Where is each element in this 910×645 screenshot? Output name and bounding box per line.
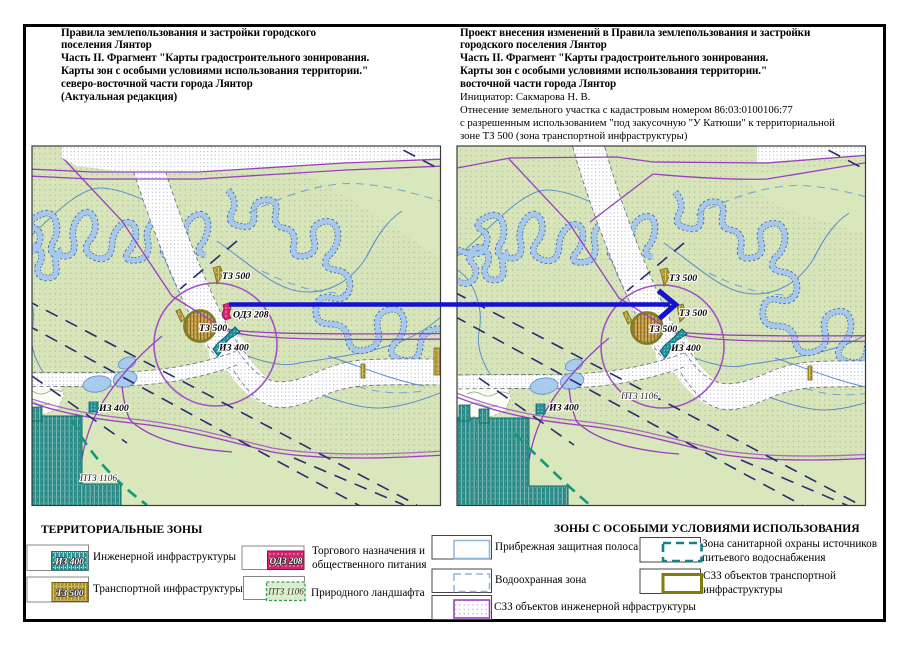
svg-text:ИЗ 400: ИЗ 400 <box>54 558 84 568</box>
svg-text:ОДЗ 208: ОДЗ 208 <box>233 310 269 321</box>
svg-text:ПТЗ 1106: ПТЗ 1106 <box>79 474 117 484</box>
svg-text:ТЗ 500: ТЗ 500 <box>669 273 697 284</box>
svg-text:ИЗ 400: ИЗ 400 <box>98 403 129 414</box>
svg-text:ТЗ 500: ТЗ 500 <box>56 589 84 599</box>
svg-text:ТЗ 500: ТЗ 500 <box>222 271 250 282</box>
svg-text:ОДЗ 208: ОДЗ 208 <box>270 556 303 566</box>
svg-text:ТЗ 500: ТЗ 500 <box>199 323 227 334</box>
svg-text:ИЗ 400: ИЗ 400 <box>548 403 579 414</box>
svg-text:ТЗ 500: ТЗ 500 <box>679 308 707 319</box>
svg-text:ПТЗ 1106: ПТЗ 1106 <box>267 587 304 597</box>
svg-text:ИЗ 400: ИЗ 400 <box>218 343 249 354</box>
svg-text:ИЗ 400: ИЗ 400 <box>670 343 701 354</box>
svg-text:ТЗ 500: ТЗ 500 <box>649 324 677 335</box>
svg-text:ПТЗ 1106: ПТЗ 1106 <box>620 392 658 402</box>
